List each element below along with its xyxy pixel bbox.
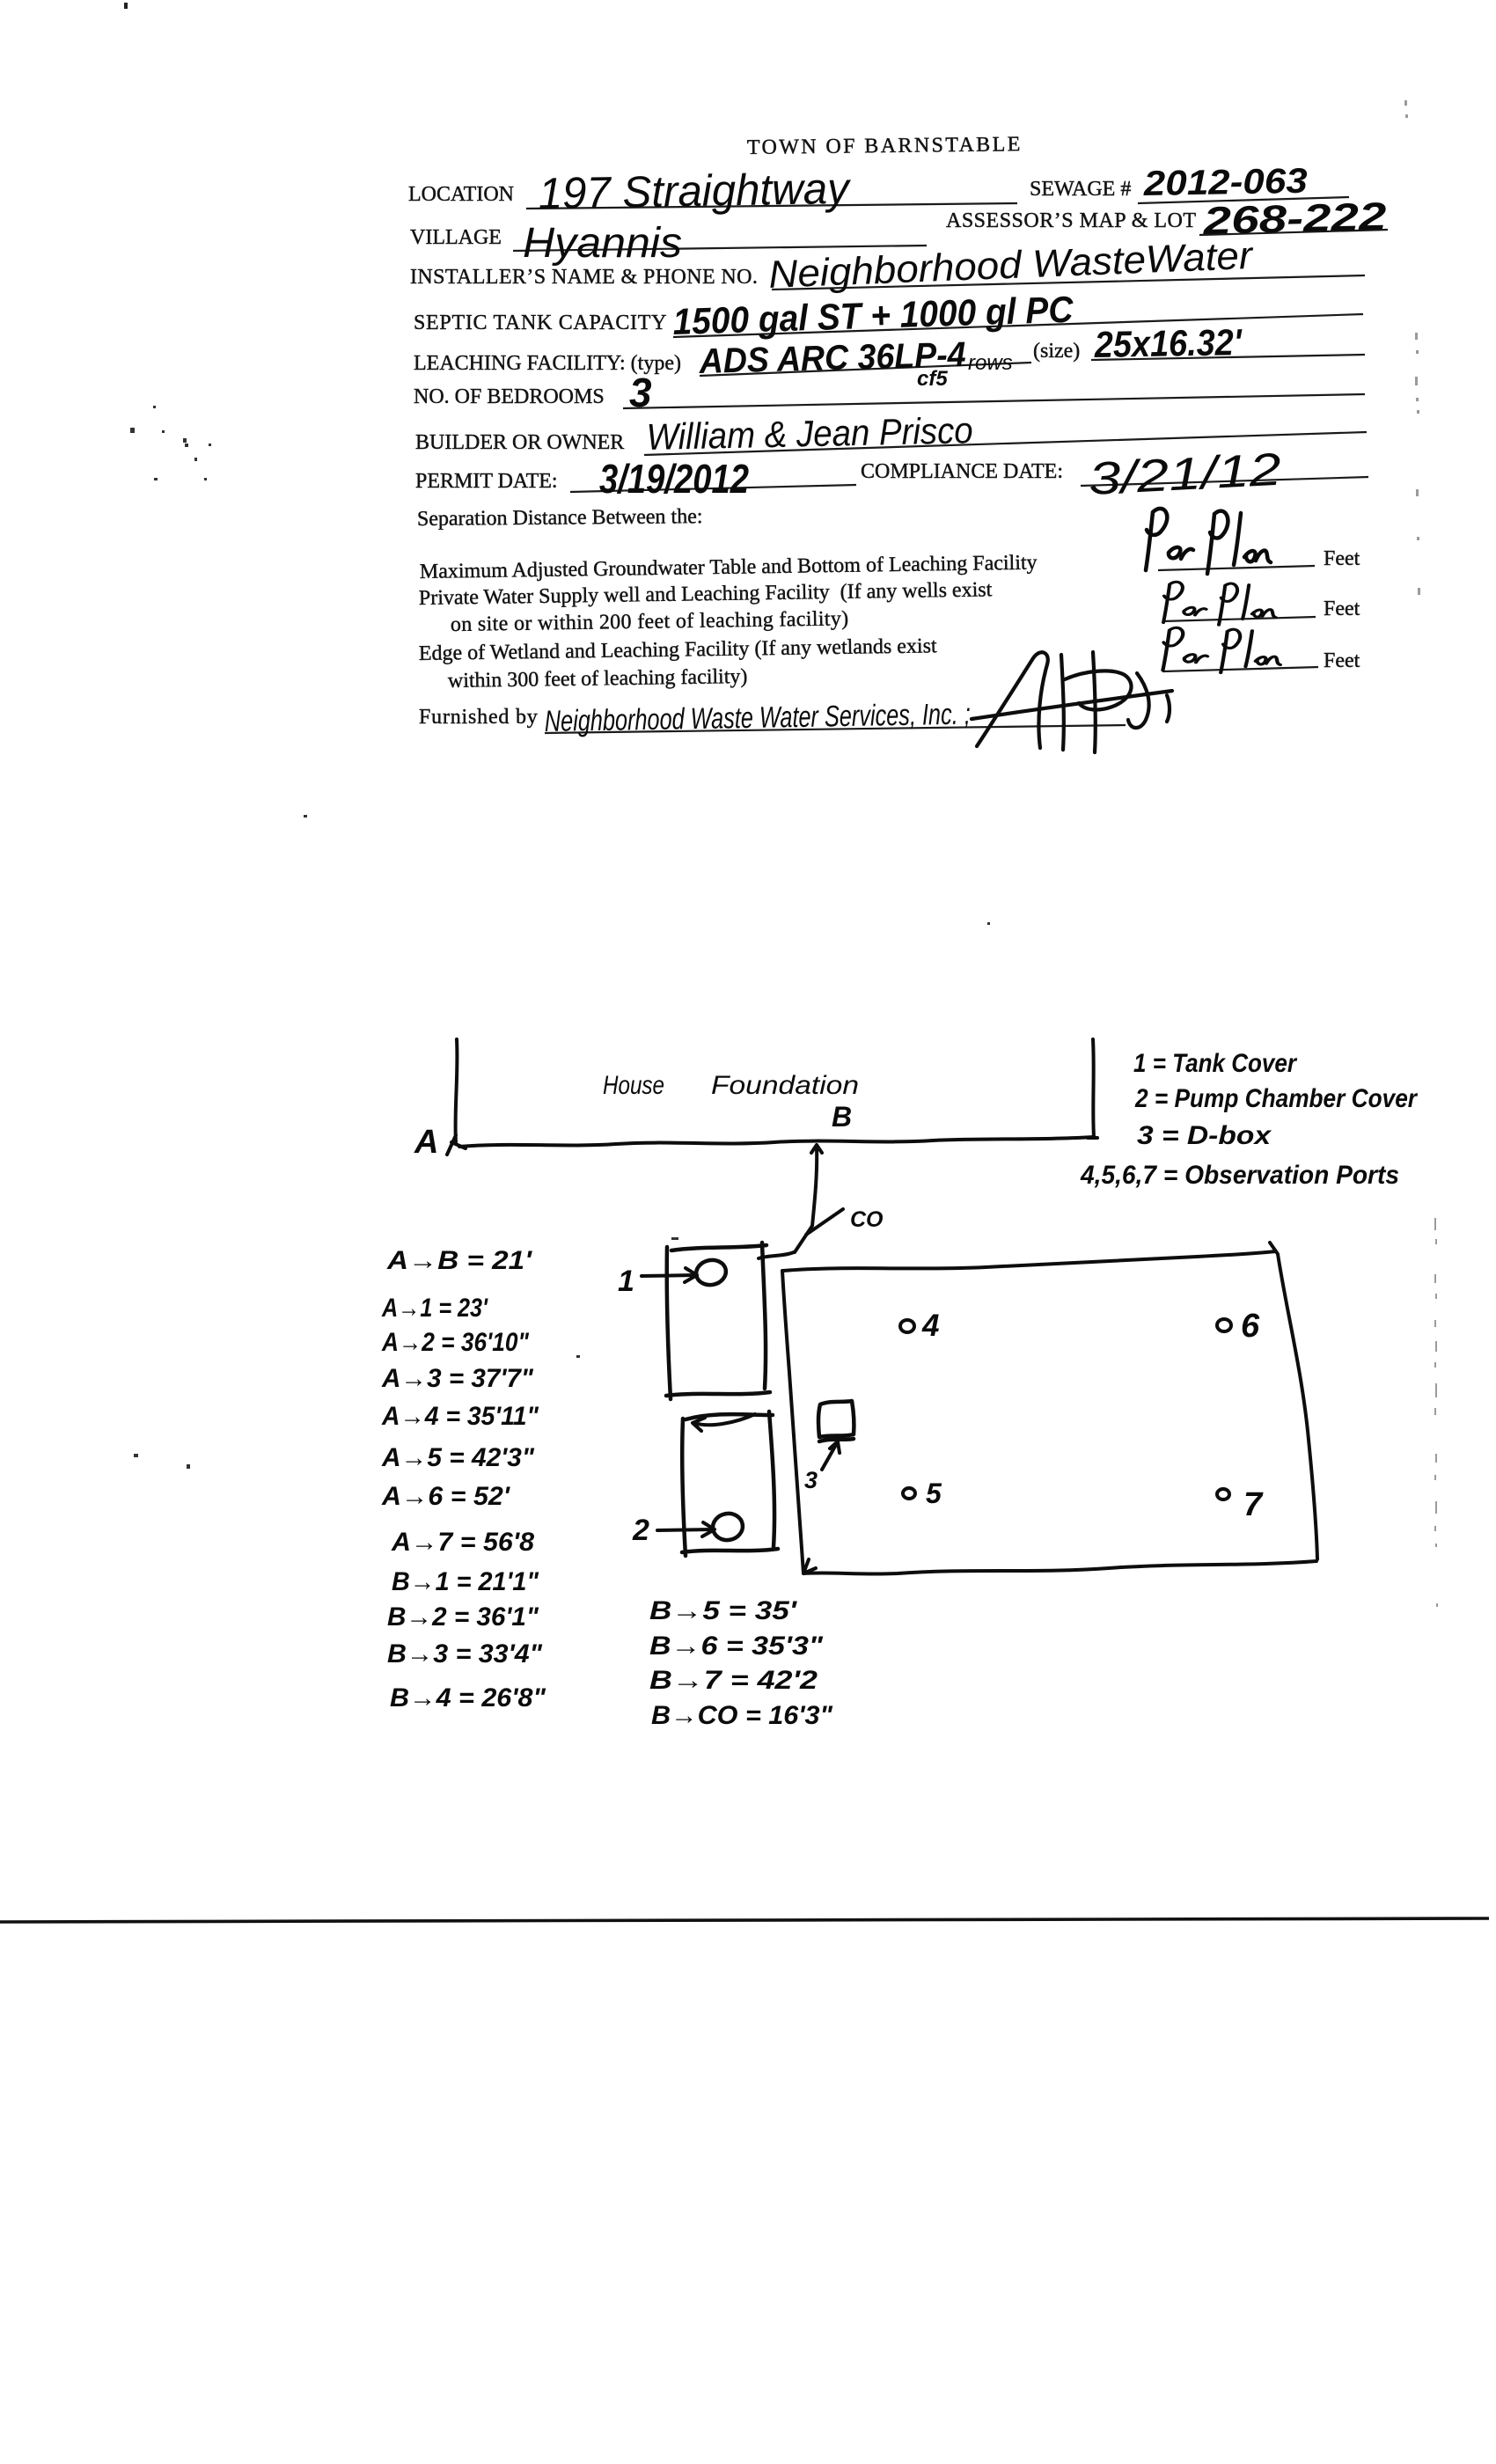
- svg-text:B→CO = 16'3": B→CO = 16'3": [651, 1701, 833, 1730]
- svg-text:B→2 = 36'1": B→2 = 36'1": [387, 1602, 539, 1632]
- svg-text:A→B = 21': A→B = 21': [386, 1246, 532, 1275]
- svg-text:B→6 = 35'3": B→6 = 35'3": [649, 1632, 824, 1661]
- svg-text:2 = Pump Chamber Cover: 2 = Pump Chamber Cover: [1134, 1084, 1419, 1113]
- svg-text:COMPLIANCE DATE:: COMPLIANCE DATE:: [861, 460, 1063, 483]
- svg-text:B→3 = 33'4": B→3 = 33'4": [387, 1639, 543, 1668]
- svg-text:4,5,6,7 = Observation Ports: 4,5,6,7 = Observation Ports: [1080, 1161, 1399, 1190]
- svg-text:7: 7: [1243, 1486, 1264, 1523]
- svg-text:ASSESSOR’S MAP & LOT: ASSESSOR’S MAP & LOT: [946, 209, 1197, 232]
- svg-text:BUILDER OR OWNER: BUILDER OR OWNER: [415, 431, 624, 454]
- svg-text:SEPTIC TANK CAPACITY: SEPTIC TANK CAPACITY: [414, 312, 667, 334]
- svg-text:CO: CO: [850, 1207, 884, 1232]
- svg-text:Hyannis: Hyannis: [523, 220, 682, 267]
- svg-text:3/19/2012: 3/19/2012: [599, 456, 749, 502]
- svg-text:LOCATION: LOCATION: [408, 183, 514, 206]
- svg-text:A→5 = 42'3": A→5 = 42'3": [381, 1443, 535, 1472]
- svg-text:B→7 = 42'2: B→7 = 42'2: [649, 1666, 818, 1695]
- svg-text:3/21/12: 3/21/12: [1088, 444, 1283, 505]
- svg-text:Foundation: Foundation: [711, 1071, 859, 1100]
- svg-text:4: 4: [921, 1309, 939, 1343]
- svg-text:1: 1: [618, 1265, 634, 1298]
- svg-text:Separation Distance Between th: Separation Distance Between the:: [417, 505, 703, 531]
- svg-text:PERMIT DATE:: PERMIT DATE:: [415, 470, 558, 493]
- svg-text:3: 3: [804, 1467, 818, 1493]
- svg-text:House: House: [603, 1071, 664, 1100]
- svg-text:Feet: Feet: [1324, 649, 1360, 672]
- svg-text:(size): (size): [1033, 340, 1080, 363]
- svg-text:cf5: cf5: [917, 367, 948, 391]
- svg-text:3 = D-box: 3 = D-box: [1137, 1121, 1272, 1150]
- svg-text:197 Straightway: 197 Straightway: [538, 164, 852, 218]
- svg-text:Furnished by: Furnished by: [419, 706, 539, 729]
- svg-text:5: 5: [926, 1478, 942, 1509]
- svg-text:SEWAGE #: SEWAGE #: [1030, 178, 1131, 201]
- svg-text:A→3 = 37'7": A→3 = 37'7": [381, 1364, 534, 1393]
- svg-text:3: 3: [629, 370, 652, 415]
- svg-text:A→2 = 36'10": A→2 = 36'10": [381, 1328, 530, 1357]
- svg-text:within 300 feet of leaching fa: within 300 feet of leaching facility): [448, 665, 748, 693]
- svg-text:2: 2: [632, 1514, 649, 1547]
- svg-text:A→4 = 35'11": A→4 = 35'11": [381, 1402, 539, 1431]
- svg-text:A→6 = 52': A→6 = 52': [381, 1482, 510, 1511]
- svg-text:INSTALLER’S NAME & PHONE NO.: INSTALLER’S NAME & PHONE NO.: [410, 266, 758, 289]
- svg-text:Feet: Feet: [1324, 598, 1360, 620]
- svg-text:25x16.32': 25x16.32': [1093, 321, 1243, 365]
- svg-text:VILLAGE: VILLAGE: [410, 226, 502, 249]
- svg-text:1 = Tank Cover: 1 = Tank Cover: [1133, 1049, 1298, 1078]
- svg-text:A→7 = 56'8: A→7 = 56'8: [391, 1528, 534, 1557]
- svg-text:NO. OF BEDROOMS: NO. OF BEDROOMS: [414, 385, 605, 408]
- svg-text:A: A: [414, 1124, 438, 1161]
- svg-text:Feet: Feet: [1324, 547, 1360, 570]
- svg-text:A→1 = 23': A→1 = 23': [381, 1294, 488, 1323]
- svg-text:B→4 = 26'8": B→4 = 26'8": [390, 1683, 546, 1712]
- svg-text:B→1 = 21'1": B→1 = 21'1": [392, 1567, 539, 1596]
- svg-text:TOWN OF BARNSTABLE: TOWN OF BARNSTABLE: [747, 133, 1023, 159]
- svg-text:B: B: [832, 1101, 852, 1133]
- svg-text:William & Jean Prisco: William & Jean Prisco: [646, 409, 973, 458]
- svg-text:6: 6: [1241, 1308, 1260, 1345]
- svg-text:B→5 = 35': B→5 = 35': [649, 1596, 797, 1625]
- svg-text:rows: rows: [968, 351, 1013, 375]
